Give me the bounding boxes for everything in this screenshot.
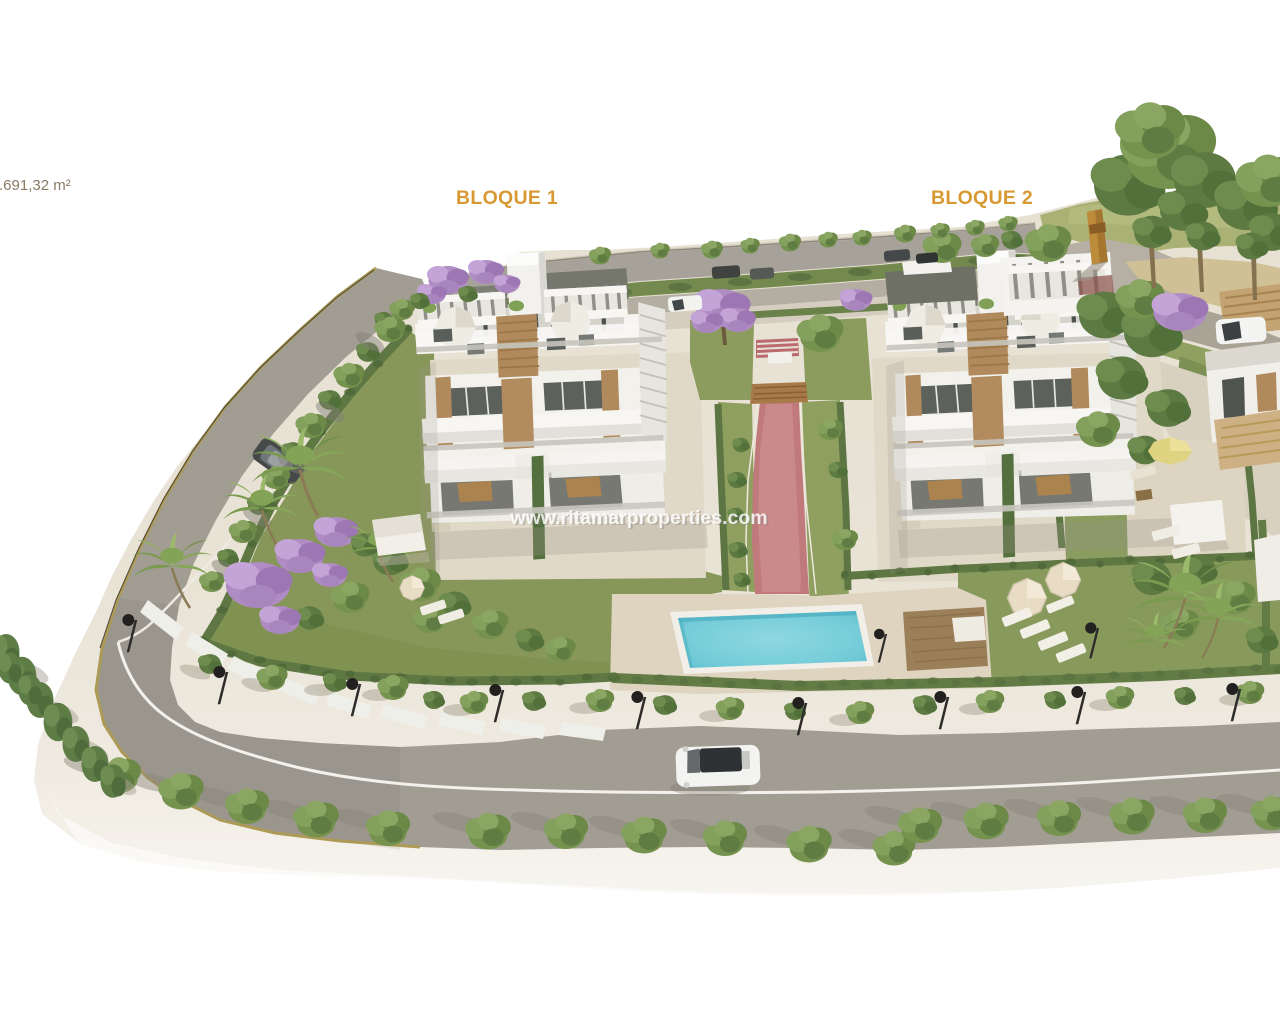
svg-text:BLOQUE 2: BLOQUE 2 <box>931 187 1033 209</box>
svg-text:.691,32 m²: .691,32 m² <box>0 177 71 194</box>
svg-text:BLOQUE 1: BLOQUE 1 <box>456 187 558 209</box>
svg-text:www.ritamarproperties.com: www.ritamarproperties.com <box>509 507 767 529</box>
